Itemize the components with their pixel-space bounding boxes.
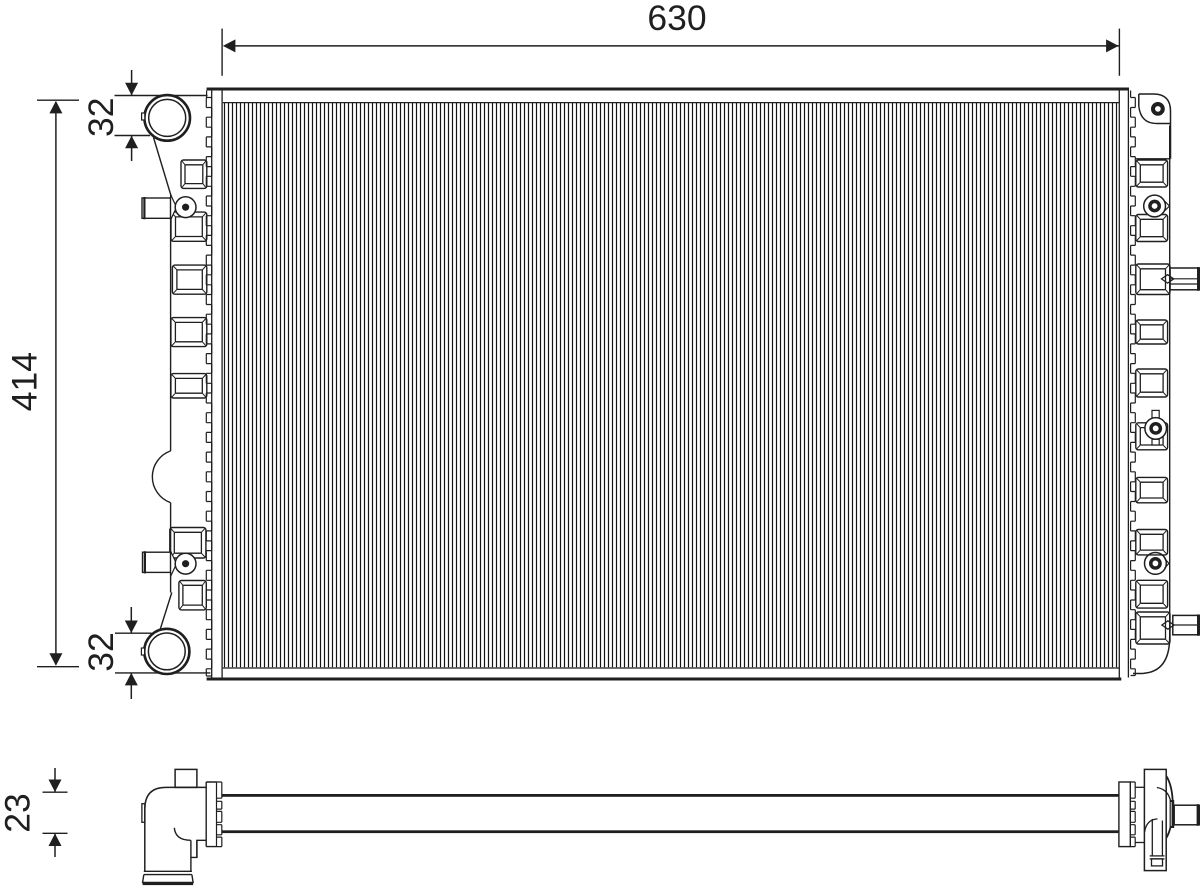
svg-text:32: 32 <box>81 632 121 672</box>
svg-text:414: 414 <box>4 352 44 411</box>
svg-text:630: 630 <box>647 0 706 38</box>
svg-text:32: 32 <box>81 97 121 137</box>
svg-text:23: 23 <box>0 793 38 833</box>
